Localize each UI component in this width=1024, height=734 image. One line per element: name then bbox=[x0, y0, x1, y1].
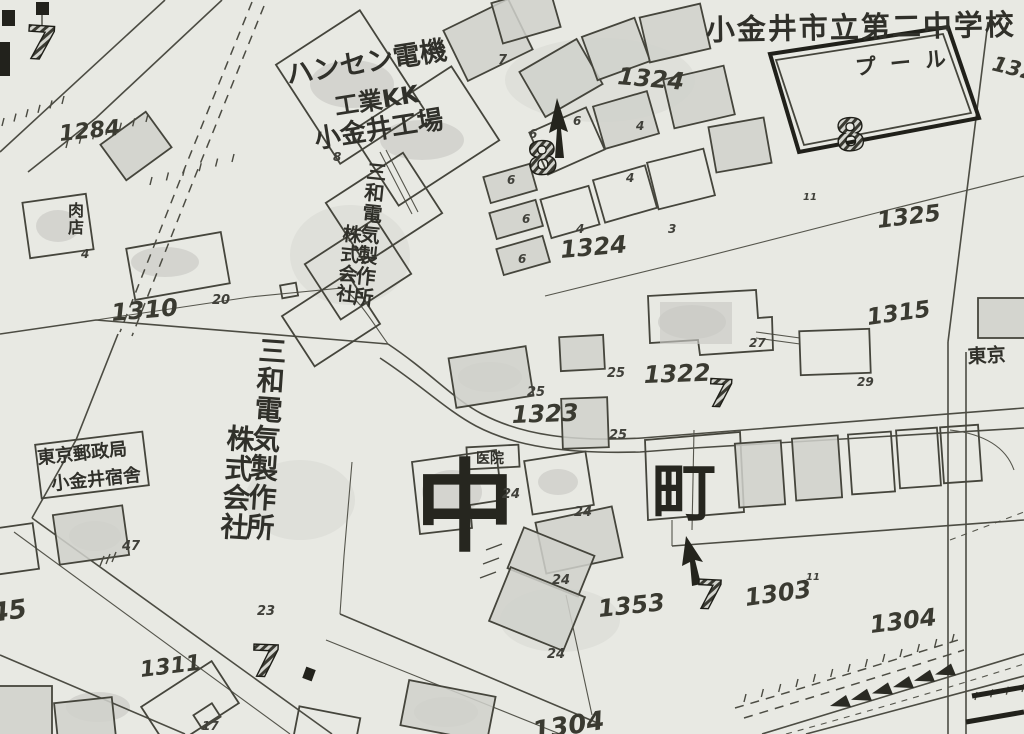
map-label-block-7-1311: 7 bbox=[250, 636, 282, 688]
map-label-lot-25-c: 25 bbox=[609, 428, 627, 443]
map-label-bench-11-b: 11 bbox=[806, 572, 820, 583]
building-outline bbox=[559, 335, 605, 371]
flag-icon bbox=[36, 2, 49, 15]
map-label-block-8-center: 8 bbox=[525, 131, 560, 186]
map-label-lot-20: 20 bbox=[212, 293, 230, 308]
scanned-map-canvas: 小金井市立第二中学校プール132ハンセン電機工業KK小金井工場三和電気製作所株式… bbox=[0, 0, 1024, 734]
building-outline bbox=[53, 505, 129, 564]
building-outline bbox=[0, 686, 52, 734]
map-label-parcel-1322: 1322 bbox=[643, 359, 711, 389]
map-label-lot-4-b: 4 bbox=[625, 171, 634, 185]
map-label-parcel-1323: 1323 bbox=[511, 399, 579, 429]
map-label-lot-8-small: 8 bbox=[333, 150, 341, 164]
edge-mark-icon bbox=[2, 10, 15, 26]
building-outline bbox=[735, 440, 785, 507]
map-label-machi-character: 町 bbox=[652, 457, 716, 531]
map-label-parcel-1324-north: 1324 bbox=[616, 62, 685, 96]
map-label-lot-27: 27 bbox=[749, 336, 766, 350]
map-label-lot-4-c: 4 bbox=[575, 222, 584, 236]
map-label-lot-3-a: 3 bbox=[668, 222, 676, 236]
map-label-parcel-1310: 1310 bbox=[110, 293, 179, 327]
map-label-block-7-1303: 7 bbox=[694, 572, 724, 619]
map-label-lot-6-b: 6 bbox=[573, 114, 581, 128]
map-label-lot-25-a: 25 bbox=[527, 385, 545, 400]
map-label-lot-47: 47 bbox=[121, 539, 141, 554]
edge-mark-icon bbox=[0, 42, 10, 76]
map-label-bench-11-a: 11 bbox=[803, 192, 817, 203]
map-label-lot-6-d: 6 bbox=[522, 212, 530, 226]
map-label-lot-6-c: 6 bbox=[507, 173, 515, 187]
map-label-parcel-1324-south: 1324 bbox=[559, 230, 628, 264]
building-outline bbox=[978, 298, 1024, 338]
map-label-school-name: 小金井市立第二中学校 bbox=[706, 8, 1017, 47]
map-label-lot-23: 23 bbox=[257, 604, 275, 619]
map-label-parcel-45-cut: 45 bbox=[0, 594, 29, 629]
map-label-block-7-topleft: 7 bbox=[23, 15, 59, 71]
pencil-smudge bbox=[538, 469, 578, 495]
map-label-lot-24-d: 24 bbox=[547, 647, 565, 662]
building-outline bbox=[54, 697, 116, 734]
map-label-lot-17: 17 bbox=[202, 719, 219, 733]
map-label-naka-character: 中 bbox=[415, 449, 515, 566]
map-label-lot-7-small: 7 bbox=[498, 53, 508, 68]
map-label-lot-24-c: 24 bbox=[552, 573, 570, 588]
map-label-lot-6-e: 6 bbox=[518, 252, 526, 266]
map-label-block-8-right: 8 bbox=[834, 109, 867, 162]
building-outline bbox=[708, 117, 771, 172]
building-outline bbox=[660, 302, 732, 344]
map-stage: 小金井市立第二中学校プール132ハンセン電機工業KK小金井工場三和電気製作所株式… bbox=[0, 0, 1024, 734]
map-label-lot-24-b: 24 bbox=[574, 505, 592, 520]
map-label-lot-4-a: 4 bbox=[635, 119, 644, 133]
map-label-tokyo-cut: 東京 bbox=[967, 343, 1006, 368]
map-label-lot-4-shop: 4 bbox=[80, 247, 89, 261]
map-label-lot-29: 29 bbox=[857, 375, 874, 389]
map-label-lot-25-b: 25 bbox=[607, 366, 625, 381]
map-label-lot-24-a: 24 bbox=[502, 487, 520, 502]
map-label-meat-shop-label: 肉店 bbox=[68, 201, 84, 237]
map-label-block-7-1322: 7 bbox=[707, 371, 736, 416]
building-outline bbox=[792, 435, 842, 500]
